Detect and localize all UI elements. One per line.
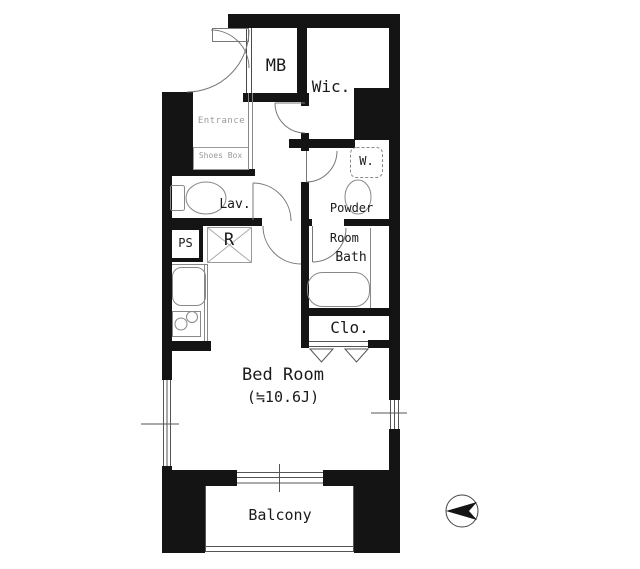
room-label-bed-room-size: (≒10.6J) <box>203 389 363 406</box>
room-label-ps: PS <box>168 237 203 250</box>
room-label-mb: MB <box>243 57 309 76</box>
powder-room-line2: Room <box>330 231 359 245</box>
floor-plan: MB Wic. Entrance Shoes Box W. Powder Roo… <box>0 0 640 569</box>
room-label-closet: Clo. <box>309 319 390 337</box>
room-label-balcony: Balcony <box>205 507 355 524</box>
closet-hanger2-icon <box>345 349 368 362</box>
lav-door-swing-arc <box>253 183 291 221</box>
kitchen-sink-icon <box>173 268 206 306</box>
kitchen-counter-edge <box>172 264 208 341</box>
stove-burner2-icon <box>187 312 198 323</box>
stove-burner-icon <box>175 318 187 330</box>
window-right <box>391 400 399 429</box>
powder-room-line1: Powder <box>330 201 373 215</box>
room-label-shoes-box: Shoes Box <box>193 152 248 161</box>
toilet-tank-icon <box>171 186 185 211</box>
wic-door-swing-arc <box>275 103 305 133</box>
entrance-door-swing-arc <box>187 30 249 92</box>
room-label-entrance: Entrance <box>193 117 250 127</box>
window-left <box>164 380 171 466</box>
closet-hanger-icon <box>310 349 333 362</box>
entrance-corridor-divider <box>249 93 253 169</box>
bedroom-door-swing-arc <box>263 226 301 264</box>
room-label-lav: Lav. <box>215 198 255 212</box>
room-label-wic: Wic. <box>301 78 361 96</box>
north-compass-arrow-icon <box>446 502 477 520</box>
bathtub-icon <box>308 273 370 307</box>
room-label-refrigerator: R <box>207 231 251 250</box>
room-label-washer: W. <box>350 155 383 168</box>
powder-door-swing-arc <box>307 151 338 182</box>
room-label-bed-room: Bed Room <box>203 366 363 385</box>
room-label-bath: Bath <box>322 251 380 265</box>
